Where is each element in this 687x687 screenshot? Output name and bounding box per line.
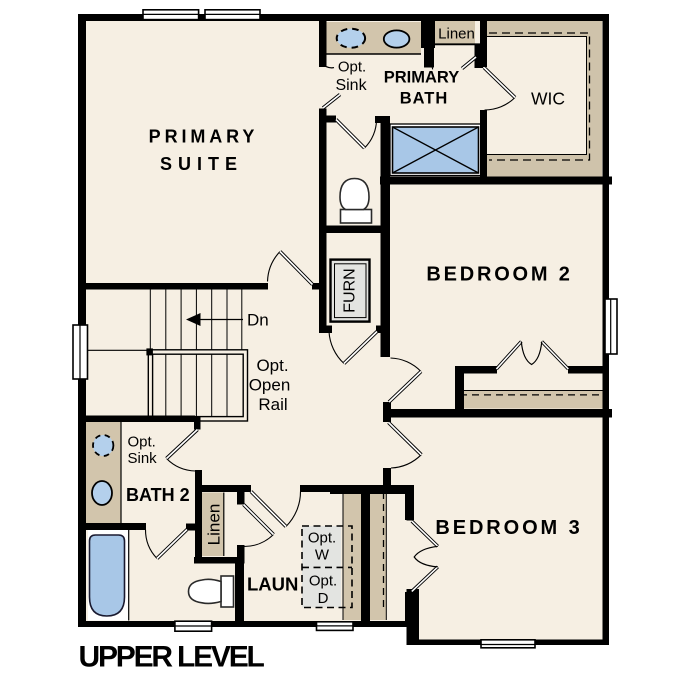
svg-text:SUITE: SUITE: [160, 154, 243, 174]
svg-text:BATH: BATH: [400, 89, 449, 107]
svg-text:BEDROOM 3: BEDROOM 3: [435, 517, 582, 539]
svg-text:BATH 2: BATH 2: [126, 485, 190, 505]
svg-text:Dn: Dn: [247, 311, 269, 330]
svg-text:WIC: WIC: [531, 89, 565, 109]
svg-text:Opt.: Opt.: [256, 356, 288, 375]
svg-text:BEDROOM 2: BEDROOM 2: [426, 264, 572, 286]
svg-text:Rail: Rail: [258, 395, 287, 414]
svg-text:Sink: Sink: [128, 450, 158, 467]
svg-text:PRIMARY: PRIMARY: [384, 69, 459, 87]
svg-text:UPPER LEVEL: UPPER LEVEL: [79, 641, 265, 674]
svg-text:Open: Open: [249, 376, 291, 395]
svg-text:Opt.: Opt.: [309, 573, 337, 590]
svg-text:Sink: Sink: [335, 77, 367, 94]
svg-text:D: D: [318, 590, 329, 607]
svg-text:FURN: FURN: [342, 268, 359, 312]
svg-text:Opt.: Opt.: [308, 530, 336, 547]
svg-text:LAUN: LAUN: [247, 574, 298, 595]
svg-text:Linen: Linen: [438, 26, 475, 43]
svg-text:PRIMARY: PRIMARY: [149, 126, 259, 146]
svg-text:Linen: Linen: [204, 504, 223, 546]
svg-text:W: W: [315, 547, 330, 564]
svg-text:Opt.: Opt.: [128, 434, 156, 451]
svg-text:Opt.: Opt.: [338, 59, 366, 76]
